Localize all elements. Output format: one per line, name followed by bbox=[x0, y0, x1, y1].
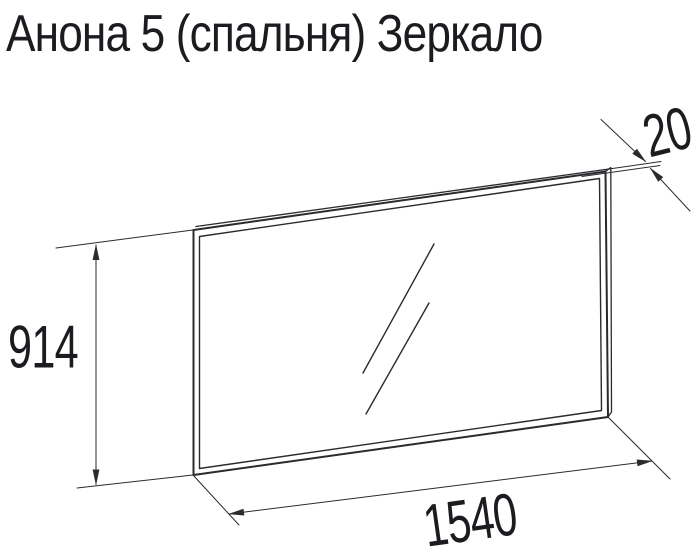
mirror-inner-frame bbox=[200, 179, 602, 469]
width-extension-line-right bbox=[608, 417, 670, 479]
glass-shine-line-2 bbox=[366, 303, 429, 414]
glass-shine-line-1 bbox=[363, 244, 434, 373]
width-extension-line-left bbox=[193, 475, 239, 525]
height-extension-line-bottom bbox=[77, 475, 193, 488]
diagram-canvas: Анона 5 (спальня) Зеркало 914 1540 20 bbox=[0, 0, 700, 553]
dimension-height-label: 914 bbox=[8, 313, 78, 382]
mirror-technical-drawing bbox=[0, 0, 700, 553]
height-extension-line-top bbox=[56, 230, 193, 248]
mirror-back-top-edge bbox=[196, 169, 609, 227]
depth-arrow-upper bbox=[601, 120, 646, 162]
dimension-width-label: 1540 bbox=[419, 479, 521, 553]
depth-arrow-lower bbox=[651, 169, 691, 212]
mirror-outer-frame bbox=[194, 172, 609, 476]
